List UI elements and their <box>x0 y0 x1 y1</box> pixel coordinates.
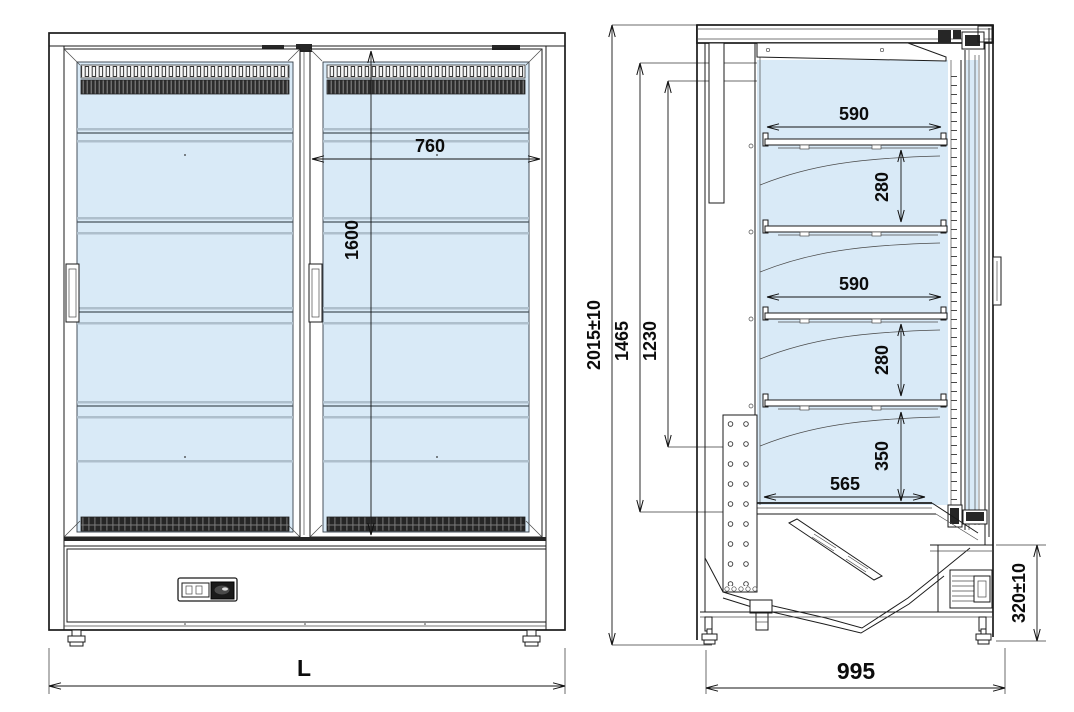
technical-drawing-canvas: 760 1600 <box>0 0 1074 712</box>
side-view: 2015±10 1465 1230 <box>584 25 1046 694</box>
back-duct <box>709 43 724 203</box>
top-grille-upper <box>327 65 525 78</box>
dim-overall-depth-label: 995 <box>837 658 876 684</box>
dim-overall-depth: 995 <box>706 648 1005 694</box>
dim-shelf-zone-label: 1230 <box>640 321 660 361</box>
dim-shelf-depth-lower-label: 590 <box>839 274 869 294</box>
front-plinth <box>67 549 546 622</box>
dim-length-label: L <box>297 655 311 681</box>
dim-plinth-height: 320±10 <box>996 545 1046 641</box>
dim-shelf-pitch-lower-label: 280 <box>872 345 892 375</box>
bottom-frame <box>700 612 993 644</box>
side-door-handle <box>993 257 1001 305</box>
dim-glass-height-label: 1600 <box>342 220 362 260</box>
evaporator-plate <box>789 519 882 580</box>
dim-shelf-depth-upper-label: 590 <box>839 104 869 124</box>
bottom-grille <box>81 517 289 531</box>
drawing-svg: 760 1600 <box>0 0 1074 712</box>
right-door-handle <box>309 264 322 322</box>
dim-base-clearance-label: 350 <box>872 441 892 471</box>
dim-base-shelf-depth-label: 565 <box>830 474 860 494</box>
dim-overall-height-label: 2015±10 <box>584 300 604 370</box>
bottom-grille <box>327 517 525 531</box>
top-grille-lower <box>81 80 289 94</box>
sill-band <box>64 537 546 541</box>
shelf-ladder <box>951 60 961 508</box>
front-view: 760 1600 <box>49 33 565 694</box>
left-door-handle <box>66 264 79 322</box>
dim-shelf-zone-height: 1230 <box>640 81 757 447</box>
top-grille-lower <box>327 80 525 94</box>
dim-inner-height-label: 1465 <box>612 321 632 361</box>
dim-door-width-label: 760 <box>415 136 445 156</box>
ceiling-panel <box>757 43 946 61</box>
controller-panel <box>178 578 237 601</box>
left-door <box>64 49 300 537</box>
dim-overall-length: L <box>49 648 565 694</box>
top-grille-upper <box>81 65 289 78</box>
front-feet <box>68 630 540 646</box>
right-door <box>309 49 542 537</box>
dim-shelf-pitch-upper-label: 280 <box>872 172 892 202</box>
dim-plinth-height-label: 320±10 <box>1009 563 1029 623</box>
perforated-panel <box>723 415 757 592</box>
